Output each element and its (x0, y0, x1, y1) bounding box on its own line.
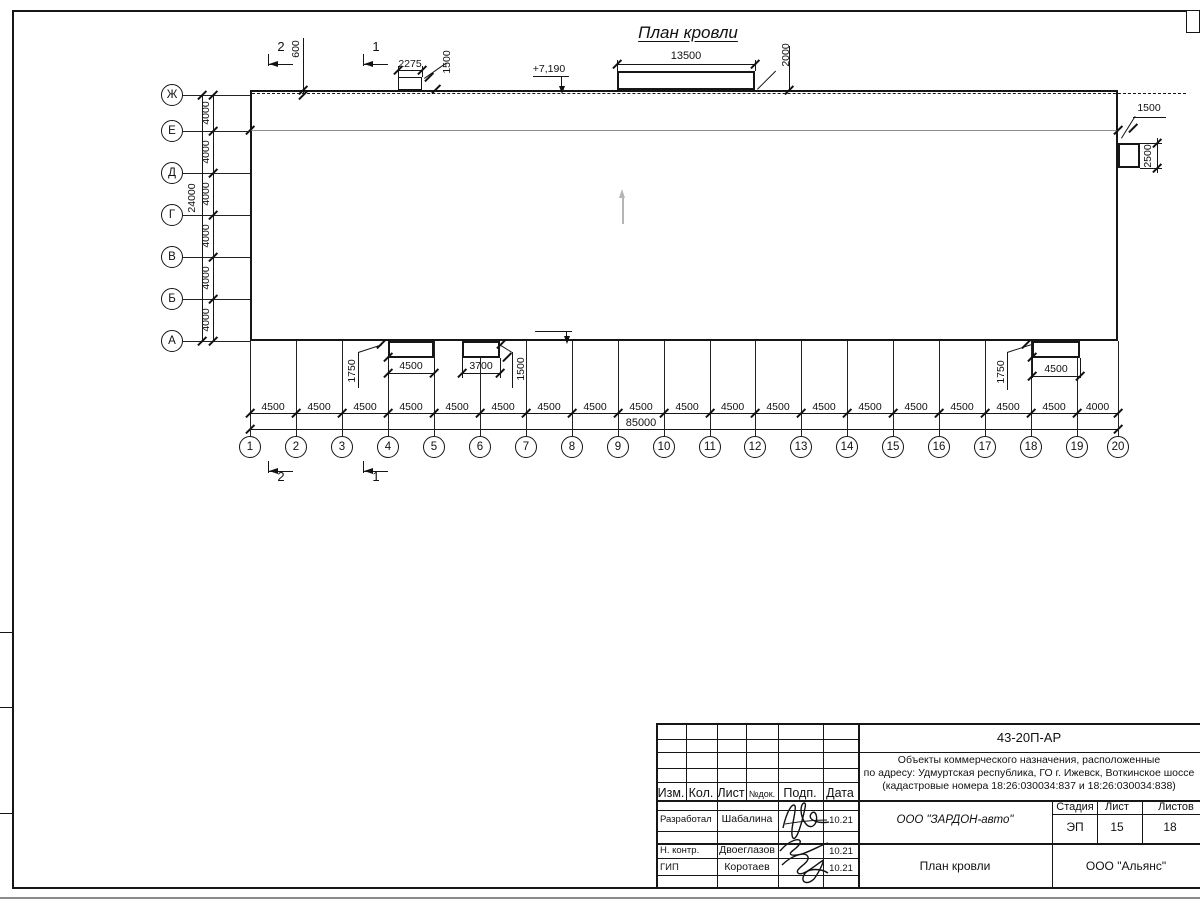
dim-bay: 4500 (491, 402, 514, 413)
line (358, 352, 359, 388)
axis-number-15: 15 (882, 436, 904, 458)
dim-bay: 4500 (721, 402, 744, 413)
line (686, 723, 687, 800)
line (1032, 376, 1080, 377)
axis-number-9: 9 (607, 436, 629, 458)
col-ndok: №док. (749, 790, 775, 799)
axis-letter-Б: Б (161, 288, 183, 310)
line (618, 341, 619, 436)
col-kol: Кол. (689, 787, 714, 800)
section-arrow (269, 61, 278, 67)
line (746, 723, 747, 800)
line (0, 897, 1200, 899)
section-arrow (364, 61, 373, 67)
axis-number-2: 2 (285, 436, 307, 458)
line (388, 373, 434, 374)
line (250, 341, 251, 436)
line (656, 752, 1200, 753)
dim-85000-bottom: 85000 (626, 418, 657, 429)
axis-number-1: 1 (239, 436, 261, 458)
drawing-sheet: План кровли +7,190 +7,870 2° 600 2275 15… (0, 0, 1200, 900)
dim-tick (502, 352, 512, 362)
axis-letter-Г: Г (161, 204, 183, 226)
axis-letter-Ж: Ж (161, 84, 183, 106)
line (250, 413, 1118, 414)
bottom-protrusion-2 (462, 341, 500, 358)
line (664, 341, 665, 436)
dim-bay: 4500 (261, 402, 284, 413)
corner-stamp-box (1186, 10, 1200, 33)
elevation-arrow-bottom (564, 336, 570, 344)
date-developer: 10.21 (829, 816, 853, 826)
line (296, 341, 297, 436)
stage-label: Стадия (1056, 802, 1094, 813)
axis-number-18: 18 (1020, 436, 1042, 458)
line (1140, 168, 1162, 169)
stage-value: ЭП (1066, 821, 1083, 833)
line (717, 723, 718, 889)
sheet-title: План кровли (920, 860, 991, 872)
line (1133, 117, 1166, 118)
sheet-label: Лист (1105, 802, 1129, 813)
line (1118, 341, 1119, 436)
project-line1: Объекты коммерческого назначения, распол… (898, 755, 1160, 766)
axis-number-8: 8 (561, 436, 583, 458)
drawing-title: План кровли (638, 24, 738, 41)
line (183, 257, 250, 258)
line (0, 707, 12, 708)
line (823, 723, 824, 889)
dim-eaves-600: 600 (291, 40, 302, 58)
line (656, 723, 1200, 725)
line (512, 352, 513, 388)
axis-number-10: 10 (653, 436, 675, 458)
dim-2500-right: 2500 (1143, 144, 1154, 167)
company-name: ООО "ЗАРДОН-авто" (897, 815, 1014, 827)
sheet-value: 15 (1110, 821, 1123, 833)
dim-1500-top: 1500 (442, 50, 453, 73)
leader-line (757, 71, 776, 90)
line (183, 341, 250, 342)
eaves-dashed-line (252, 93, 1186, 94)
axis-letter-Д: Д (161, 162, 183, 184)
line (462, 373, 500, 374)
line (847, 341, 848, 436)
axis-number-20: 20 (1107, 436, 1129, 458)
axis-number-17: 17 (974, 436, 996, 458)
line (1142, 800, 1143, 843)
line (500, 358, 501, 378)
doc-number: 43-20П-АР (997, 731, 1061, 744)
org-name: ООО "Альянс" (1086, 860, 1166, 872)
line (778, 723, 779, 889)
role-ncontr: Н. контр. (660, 846, 699, 856)
line (617, 64, 755, 65)
line (183, 299, 250, 300)
dim-bay: 4500 (675, 402, 698, 413)
dim-1750-b3: 1750 (996, 360, 1007, 383)
dim-4500-b3: 4500 (1044, 364, 1067, 375)
elevation-arrow-top (559, 86, 565, 94)
line (342, 341, 343, 436)
sheets-value: 18 (1163, 821, 1176, 833)
line (0, 813, 12, 814)
dim-bay: 4500 (307, 402, 330, 413)
line (388, 358, 389, 378)
line (533, 76, 569, 77)
line (434, 341, 435, 436)
axis-number-14: 14 (836, 436, 858, 458)
dim-3700-b2: 3700 (469, 361, 492, 372)
line (12, 887, 1200, 889)
name-ncontr: Двоеглазов (719, 845, 775, 856)
bottom-protrusion-3 (1032, 341, 1080, 358)
line (755, 341, 756, 436)
line (1140, 143, 1162, 144)
axis-number-6: 6 (469, 436, 491, 458)
dim-bay: 4500 (812, 402, 835, 413)
axis-number-12: 12 (744, 436, 766, 458)
dim-4500-b1: 4500 (399, 361, 422, 372)
name-gip: Коротаев (724, 862, 769, 873)
line (656, 810, 858, 811)
axis-number-7: 7 (515, 436, 537, 458)
axis-number-3: 3 (331, 436, 353, 458)
dim-bay: 4500 (353, 402, 376, 413)
col-list: Лист (717, 787, 744, 800)
section-mark-1-top: 1 (372, 40, 379, 53)
line (1052, 800, 1053, 889)
line (985, 341, 986, 436)
axis-letter-В: В (161, 246, 183, 268)
bottom-protrusion-1 (388, 341, 434, 358)
line (12, 10, 1200, 12)
project-line2: по адресу: Удмуртская республика, ГО г. … (864, 768, 1195, 779)
dim-bay: 4500 (766, 402, 789, 413)
line (656, 723, 658, 889)
line (213, 95, 214, 341)
dim-bay: 4500 (858, 402, 881, 413)
line (656, 800, 1200, 802)
section-mark-2-top: 2 (277, 40, 284, 53)
dim-bay: 4500 (904, 402, 927, 413)
line (622, 197, 624, 224)
line (1052, 814, 1200, 815)
axis-number-5: 5 (423, 436, 445, 458)
line (1007, 352, 1008, 390)
dim-bay: 4500 (583, 402, 606, 413)
line (789, 46, 790, 91)
dim-bay: 4000 (1086, 402, 1109, 413)
line (572, 341, 573, 436)
building-outline (250, 90, 1118, 341)
line (656, 831, 858, 832)
col-izm: Изм. (658, 787, 685, 800)
section-arrow (364, 468, 373, 474)
section-arrow (269, 468, 278, 474)
role-developer: Разработал (660, 815, 712, 825)
slope-arrow (619, 189, 625, 198)
roof-hatch-small (398, 77, 422, 90)
axis-number-16: 16 (928, 436, 950, 458)
leader-line (1007, 344, 1031, 353)
line (0, 632, 12, 633)
line (462, 358, 463, 378)
line (1097, 800, 1098, 843)
line (250, 130, 1118, 131)
dim-13500: 13500 (671, 51, 702, 62)
dim-1750-b1: 1750 (347, 359, 358, 382)
project-line3: (кадастровые номера 18:26:030034:837 и 1… (882, 781, 1176, 792)
dim-bay: 4500 (537, 402, 560, 413)
line (801, 341, 802, 436)
line (183, 173, 250, 174)
elevation-top-label: +7,190 (533, 64, 565, 75)
dim-1500-right: 1500 (1137, 103, 1160, 114)
line (939, 341, 940, 436)
dim-bay: 4500 (399, 402, 422, 413)
sheets-label: Листов (1158, 802, 1194, 813)
dim-bay: 4500 (996, 402, 1019, 413)
line (183, 215, 250, 216)
right-protrusion (1118, 143, 1140, 168)
axis-number-13: 13 (790, 436, 812, 458)
line (202, 95, 203, 341)
line (12, 10, 14, 888)
line (250, 429, 1118, 430)
axis-number-19: 19 (1066, 436, 1088, 458)
line (434, 358, 435, 378)
role-gip: ГИП (660, 863, 679, 873)
axis-number-4: 4 (377, 436, 399, 458)
dim-2275: 2275 (398, 59, 421, 70)
axis-letter-А: А (161, 330, 183, 352)
line (656, 843, 1200, 845)
line (183, 131, 250, 132)
axis-letter-Е: Е (161, 120, 183, 142)
line (526, 341, 527, 436)
line (893, 341, 894, 436)
line (858, 723, 860, 889)
line (183, 95, 250, 96)
dim-bay: 4500 (950, 402, 973, 413)
roof-structure-top (617, 71, 755, 90)
name-developer: Шабалина (722, 814, 773, 825)
dim-24000: 24000 (187, 183, 198, 212)
line (656, 875, 858, 876)
axis-number-11: 11 (699, 436, 721, 458)
dim-bay: 4500 (445, 402, 468, 413)
dim-bay: 4500 (1042, 402, 1065, 413)
line (710, 341, 711, 436)
dim-1500-b2: 1500 (516, 357, 527, 380)
dim-bay: 4500 (629, 402, 652, 413)
line (656, 858, 858, 859)
